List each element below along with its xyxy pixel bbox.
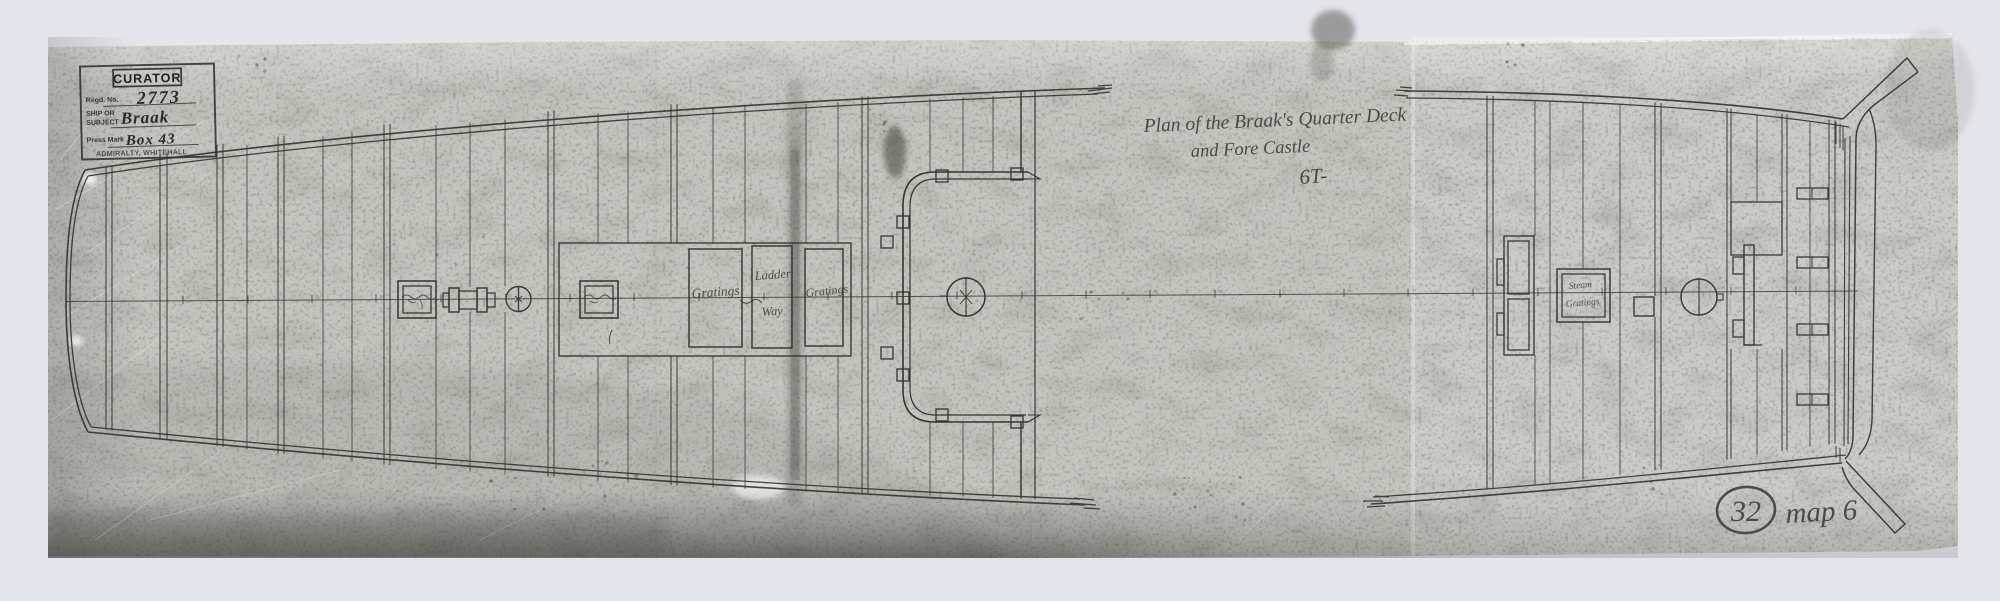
svg-text:map 6: map 6 [1785, 494, 1859, 530]
svg-text:Ladder: Ladder [753, 266, 791, 283]
svg-text:SUBJECT: SUBJECT [86, 119, 120, 127]
svg-text:32: 32 [1730, 495, 1761, 528]
svg-text:Way: Way [761, 304, 783, 319]
svg-text:2773: 2773 [135, 86, 181, 108]
svg-text:Box 43: Box 43 [125, 131, 176, 149]
svg-text:CURATOR: CURATOR [113, 71, 182, 87]
svg-text:6T-: 6T- [1299, 163, 1328, 189]
svg-text:Press Mark: Press Mark [87, 137, 125, 145]
svg-text:SHIP OR: SHIP OR [86, 110, 115, 118]
svg-text:Regd. No.: Regd. No. [86, 97, 119, 105]
svg-text:Steam: Steam [1568, 280, 1592, 292]
svg-text:Braak: Braak [119, 107, 169, 128]
